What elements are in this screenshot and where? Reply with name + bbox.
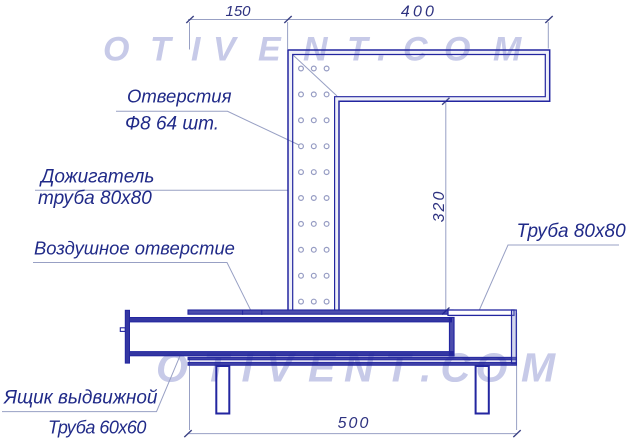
svg-text:500: 500 <box>338 415 371 432</box>
svg-text:труба 80х80: труба 80х80 <box>38 188 152 209</box>
svg-text:320: 320 <box>431 190 448 223</box>
svg-text:Ф8 64 шт.: Ф8 64 шт. <box>125 114 219 135</box>
svg-text:400: 400 <box>401 4 437 21</box>
svg-text:Труба 80х80: Труба 80х80 <box>517 221 627 242</box>
svg-text:Отверстия: Отверстия <box>127 86 232 107</box>
svg-text:Ящик выдвижной: Ящик выдвижной <box>3 388 158 409</box>
svg-text:Воздушное отверстие: Воздушное отверстие <box>34 238 235 259</box>
svg-text:Труба 60х60: Труба 60х60 <box>48 418 146 438</box>
svg-text:150: 150 <box>225 3 251 20</box>
svg-text:Дожигатель: Дожигатель <box>39 167 154 188</box>
